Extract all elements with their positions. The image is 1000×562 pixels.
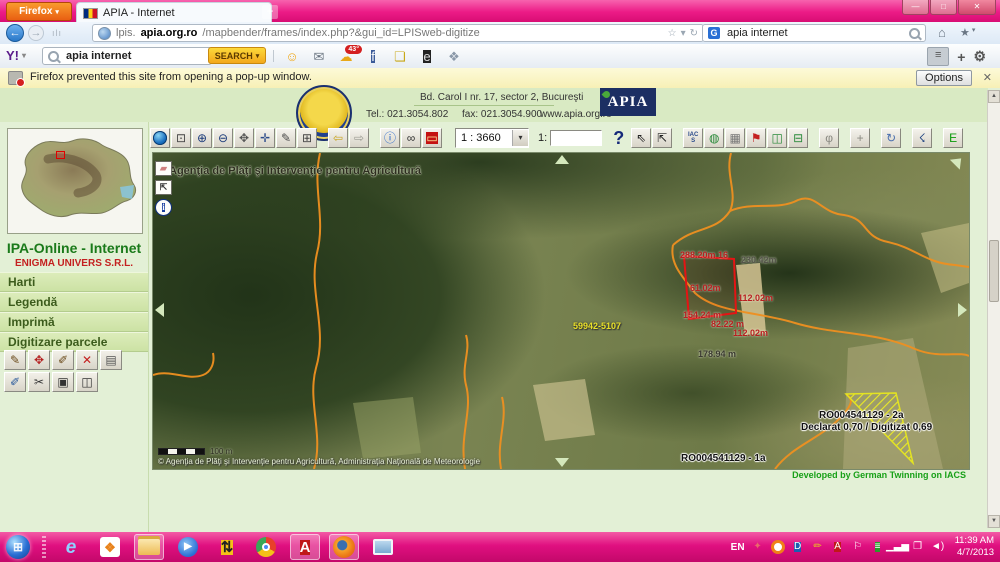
page-scrollbar[interactable]: ▲ ▼ [987, 90, 1000, 528]
back-button[interactable]: ← [6, 24, 24, 42]
tool-session-pin[interactable]: φ [819, 128, 839, 148]
tool-history-forward[interactable]: ⇨ [349, 128, 369, 148]
digitize-merge-tool[interactable]: ◫ [76, 372, 98, 392]
window-minimize-button[interactable]: — [902, 0, 929, 15]
tray-app-d-icon[interactable]: D [791, 540, 805, 554]
map-watermark: Agenţia de Plăţi şi Intervenţie pentru A… [169, 165, 421, 177]
browser-navbar: ← → ılı lpis. apia.org.ro /mapbender/fra… [0, 22, 1000, 45]
url-dropdown-icon[interactable]: ▾ [681, 28, 686, 39]
map-viewport[interactable]: Agenţia de Plăţi şi Intervenţie pentru A… [152, 152, 970, 470]
tool-select-arrow[interactable]: ⇖ [631, 128, 651, 148]
tray-adobe-icon[interactable]: A [831, 540, 845, 554]
yahoo-facebook-icon[interactable]: f [363, 47, 383, 65]
app-chrome[interactable] [251, 534, 281, 560]
search-icon[interactable] [909, 28, 920, 39]
parcel-2a-areas: Declarat 0,70 / Digitizat 0,69 [801, 422, 932, 433]
map-tools-right: ⇖⇱IACS◍▦⚑◫⊟φ+↻☇E [631, 128, 963, 148]
taskbar-clock[interactable]: 11:39 AM 4/7/2013 [955, 535, 994, 559]
yahoo-smiley-icon[interactable]: ☺ [282, 47, 302, 65]
map-toolbar: ⊡⊕⊖✥✛✎⊞⇦⇨ⓘ∞▭ 1 : 3660 ▾ 1: ? ⇖⇱IACS◍▦⚑◫⊟… [150, 126, 963, 150]
reload-icon[interactable]: ↻ [690, 28, 698, 39]
popup-blocked-icon [8, 71, 23, 85]
close-icon[interactable]: ✕ [983, 71, 992, 84]
tool-gps-satellite[interactable]: ☇ [912, 128, 932, 148]
search-icon [48, 51, 59, 62]
map-tools-left: ⊡⊕⊖✥✛✎⊞⇦⇨ⓘ∞▭ [150, 128, 442, 148]
digitize-move-vertex-tool[interactable]: ✥ [28, 350, 50, 370]
tool-pan-hand[interactable]: ✥ [234, 128, 254, 148]
yahoo-toolbar: Y! ▾ SEARCH ▾ ☺✉☁43°f❏e❖ ≡ + ⚙ [0, 44, 1000, 69]
tool-feature-info[interactable]: ⓘ [380, 128, 400, 148]
menu-digitizare-parcele[interactable]: Digitizare parcele [0, 332, 148, 352]
map-eraser-button[interactable]: ▰ [155, 161, 172, 176]
options-button[interactable]: Options [916, 70, 972, 86]
romania-overview-map[interactable] [7, 128, 143, 234]
pan-south-arrow[interactable] [555, 458, 569, 467]
browser-titlebar: Firefox ▾ APIA - Internet + —□✕ [0, 0, 1000, 22]
tool-select-shape[interactable]: ⇱ [652, 128, 672, 148]
scale-select[interactable]: 1 : 3660 ▾ [455, 128, 529, 148]
yahoo-toolbar-right: ≡ + ⚙ [927, 47, 986, 66]
tray-pencil-icon[interactable]: ✏ [811, 540, 825, 554]
desktop-screen: Firefox ▾ APIA - Internet + —□✕ ← → ılı … [0, 0, 1000, 562]
chevron-down-icon: ▾ [55, 8, 59, 16]
yahoo-logo: Y! [6, 48, 19, 63]
tool-refresh-map[interactable]: ↻ [881, 128, 901, 148]
tray-download-icon[interactable] [771, 540, 785, 554]
bookmarks-button[interactable]: ★ ▾ [960, 26, 975, 39]
chevron-down-icon: ▾ [22, 51, 26, 60]
company-name: ENIGMA UNIVERS S.R.L. [0, 258, 148, 269]
yahoo-toolbar-icons: ☺✉☁43°f❏e❖ [282, 47, 464, 65]
toolbar-menu-icon[interactable]: ≡ [927, 47, 949, 66]
search-box[interactable]: G [702, 24, 926, 42]
add-icon[interactable]: + [957, 49, 965, 65]
url-prefix: lpis. [116, 27, 136, 39]
sidebar-menu: HartiLegendăImprimăDigitizare parcele [0, 272, 148, 352]
tray-power-icon[interactable]: ≡ [871, 540, 885, 554]
measurement-label: 230.42m [741, 255, 777, 265]
yahoo-logo-button[interactable]: Y! ▾ [6, 48, 26, 63]
home-button[interactable]: ⌂ [938, 25, 946, 40]
scale-input[interactable] [550, 130, 602, 146]
tool-wms-globe-add[interactable]: ⊟ [788, 128, 808, 148]
url-bar[interactable]: lpis. apia.org.ro /mapbender/frames/inde… [92, 24, 704, 42]
yahoo-mail-icon[interactable]: ✉ [309, 47, 329, 65]
tool-edit-mode[interactable]: E [943, 128, 963, 148]
header-address: Bd. Carol I nr. 17, sector 2, Bucureşti [420, 92, 583, 103]
map-scalebar: 100 m [158, 447, 232, 456]
language-indicator[interactable]: EN [731, 542, 745, 553]
tray-flag-icon[interactable]: ⚐ [851, 540, 865, 554]
digitize-trash-tool[interactable]: ▤ [100, 350, 122, 370]
parcel-2a-id: RO004541129 - 2a [819, 410, 904, 421]
app-updown-arrows[interactable]: ⇅ [212, 534, 242, 560]
header-fax: fax: 021.3054.900 [462, 109, 542, 120]
tool-wms-globe-tiles[interactable]: ◫ [767, 128, 787, 148]
yahoo-apps-icon[interactable]: ❖ [444, 47, 464, 65]
taskbar-apps: ⊞e❖▶⇅A [4, 532, 398, 562]
clock-date: 4/7/2013 [955, 547, 994, 559]
measurement-label: 61.02m [690, 283, 721, 293]
scale-input-label: 1: [538, 132, 547, 144]
apia-logo: APIA [600, 88, 656, 116]
scroll-down-icon[interactable]: ▼ [988, 515, 1000, 528]
notification-message: Firefox prevented this site from opening… [30, 71, 312, 83]
app-media-player[interactable]: ▶ [173, 534, 203, 560]
google-icon: G [708, 27, 720, 39]
digitize-edit-tool[interactable]: ✐ [52, 350, 74, 370]
clock-time: 11:39 AM [955, 535, 994, 547]
help-button[interactable]: ? [613, 128, 624, 149]
tool-measure-red[interactable]: ▭ [422, 128, 442, 148]
tool-wms-globe-edit[interactable]: ◍ [704, 128, 724, 148]
app-title: IPA-Online - Internet [0, 240, 148, 256]
app-internet-explorer[interactable]: e [56, 534, 86, 560]
digitize-delete-tool[interactable]: ✕ [76, 350, 98, 370]
tool-grid[interactable]: ▦ [725, 128, 745, 148]
digitize-split-tool[interactable]: ✂ [28, 372, 50, 392]
measurement-label: 112.02m [733, 328, 768, 338]
search-input[interactable] [725, 26, 904, 40]
sidebar: IPA-Online - Internet ENIGMA UNIVERS S.R… [0, 122, 149, 532]
tool-flag[interactable]: ⚑ [746, 128, 766, 148]
romania-flag-favicon [83, 8, 98, 19]
app-windows-explorer[interactable] [134, 534, 164, 560]
tool-overview-globe[interactable] [150, 128, 170, 148]
yahoo-notepad-icon[interactable]: ❏ [390, 47, 410, 65]
tray-messenger-icon[interactable]: ✦ [751, 540, 765, 554]
tab-title: APIA - Internet [103, 7, 175, 19]
map-copyright: © Agenţia de Plăţi şi Intervenţie pentru… [158, 457, 480, 466]
digitize-rectangle-tool[interactable]: ▣ [52, 372, 74, 392]
menu-harti[interactable]: Harti [0, 272, 148, 292]
digitize-draw-tool[interactable]: ✎ [4, 350, 26, 370]
digitize-snap-tool[interactable]: ✐ [4, 372, 26, 392]
window-close-button[interactable]: ✕ [958, 0, 996, 15]
tool-zoom-rectangle[interactable]: ⊡ [171, 128, 191, 148]
bookmark-star-icon[interactable]: ☆ [668, 28, 677, 39]
tool-recenter[interactable]: ✛ [255, 128, 275, 148]
measurement-label: 288.20m 16 [680, 250, 728, 260]
url-path: /mapbender/frames/index.php?&gui_id=LPIS… [202, 27, 662, 39]
chevron-down-icon: ▾ [256, 52, 260, 60]
yahoo-search-button[interactable]: SEARCH ▾ [208, 47, 266, 64]
scroll-up-icon[interactable]: ▲ [988, 90, 1000, 103]
developer-credit: Developed by German Twinning on IACS [792, 470, 966, 480]
window-maximize-button[interactable]: □ [930, 0, 957, 15]
firefox-menu-button[interactable]: Firefox ▾ [6, 2, 72, 21]
digitize-tools-row2: ✐✂▣◫ [4, 372, 98, 392]
tool-coordinates-plus[interactable]: + [850, 128, 870, 148]
site-identity-icon [98, 27, 111, 40]
yahoo-weather-icon[interactable]: ☁43° [336, 47, 356, 65]
tool-history-back[interactable]: ⇦ [328, 128, 348, 148]
start-button[interactable]: ⊞ [4, 534, 32, 560]
gear-icon[interactable]: ⚙ [973, 48, 986, 65]
tool-digitize-pen[interactable]: ✎ [276, 128, 296, 148]
new-tab-button[interactable]: + [262, 5, 278, 19]
pan-east-arrow[interactable] [958, 303, 967, 317]
app-adobe-reader[interactable]: A [290, 534, 320, 560]
measurement-label: 178.94 m [698, 349, 736, 359]
scalebar-segments [158, 448, 205, 455]
yahoo-search-input[interactable] [64, 49, 206, 63]
scale-value: 1 : 3660 [456, 132, 512, 144]
map-location-marker [56, 151, 65, 159]
parcel-1a-id: RO004541129 - 1a [681, 453, 766, 464]
tool-iacs[interactable]: IACS [683, 128, 703, 148]
toolbar-separator [273, 50, 274, 62]
tool-search-binoculars[interactable]: ∞ [401, 128, 421, 148]
map-side-buttons: ▰⇱i [155, 161, 172, 216]
app-firefox[interactable] [329, 534, 359, 560]
tool-zoom-out[interactable]: ⊖ [213, 128, 233, 148]
pan-west-arrow[interactable] [155, 303, 164, 317]
menu-legenda[interactable]: Legendă [0, 292, 148, 312]
app-office[interactable]: ❖ [95, 534, 125, 560]
popup-notification-bar: Firefox prevented this site from opening… [0, 68, 1000, 89]
header-telephone: Tel.: 021.3054.802 [366, 109, 448, 120]
physical-block-id: 59942-5107 [573, 321, 621, 331]
yahoo-search-box[interactable] [42, 47, 212, 65]
page-content: Bd. Carol I nr. 17, sector 2, Bucureşti … [0, 88, 1000, 532]
tray-network-icon[interactable]: ▁▃▅ [891, 540, 905, 554]
menu-imprima[interactable]: Imprimă [0, 312, 148, 332]
romania-map-image [8, 129, 142, 233]
digitize-tools-row1: ✎✥✐✕▤ [4, 350, 122, 370]
map-select-box-button[interactable]: ⇱ [155, 180, 172, 195]
firefox-menu-label: Firefox [19, 6, 52, 17]
map-info-button[interactable]: i [155, 199, 172, 216]
yahoo-ebay-icon[interactable]: e [417, 47, 437, 65]
tool-full-extent[interactable]: ⊞ [297, 128, 317, 148]
scrollbar-thumb[interactable] [989, 240, 999, 302]
chevron-down-icon[interactable]: ▾ [512, 130, 528, 146]
recent-pages-icon[interactable]: ılı [52, 28, 62, 38]
system-tray: EN ✦D✏A⚐≡▁▃▅❐◄) 11:39 AM 4/7/2013 [731, 532, 998, 562]
chevron-down-icon: ▾ [972, 26, 976, 39]
taskbar-grip[interactable] [41, 534, 47, 560]
bookmarks-star-icon: ★ [960, 26, 970, 39]
tray-clipboard-icon[interactable]: ❐ [911, 540, 925, 554]
tray-volume-icon[interactable]: ◄) [931, 540, 945, 554]
window-controls: —□✕ [902, 0, 996, 15]
windows-taskbar: ⊞e❖▶⇅A EN ✦D✏A⚐≡▁▃▅❐◄) 11:39 AM 4/7/2013 [0, 532, 1000, 562]
site-header: Bd. Carol I nr. 17, sector 2, Bucureşti … [0, 88, 988, 122]
url-domain: apia.org.ro [141, 27, 198, 39]
forward-button[interactable]: → [28, 25, 44, 41]
browser-tab[interactable]: APIA - Internet [76, 2, 272, 23]
header-divider [414, 105, 554, 106]
pan-north-arrow[interactable] [555, 155, 569, 164]
tray-icons: ✦D✏A⚐≡▁▃▅❐◄) [751, 532, 945, 562]
tool-zoom-in[interactable]: ⊕ [192, 128, 212, 148]
scalebar-label: 100 m [210, 447, 232, 456]
app-image-viewer[interactable] [368, 534, 398, 560]
measurement-label: 112.02m [738, 293, 773, 303]
